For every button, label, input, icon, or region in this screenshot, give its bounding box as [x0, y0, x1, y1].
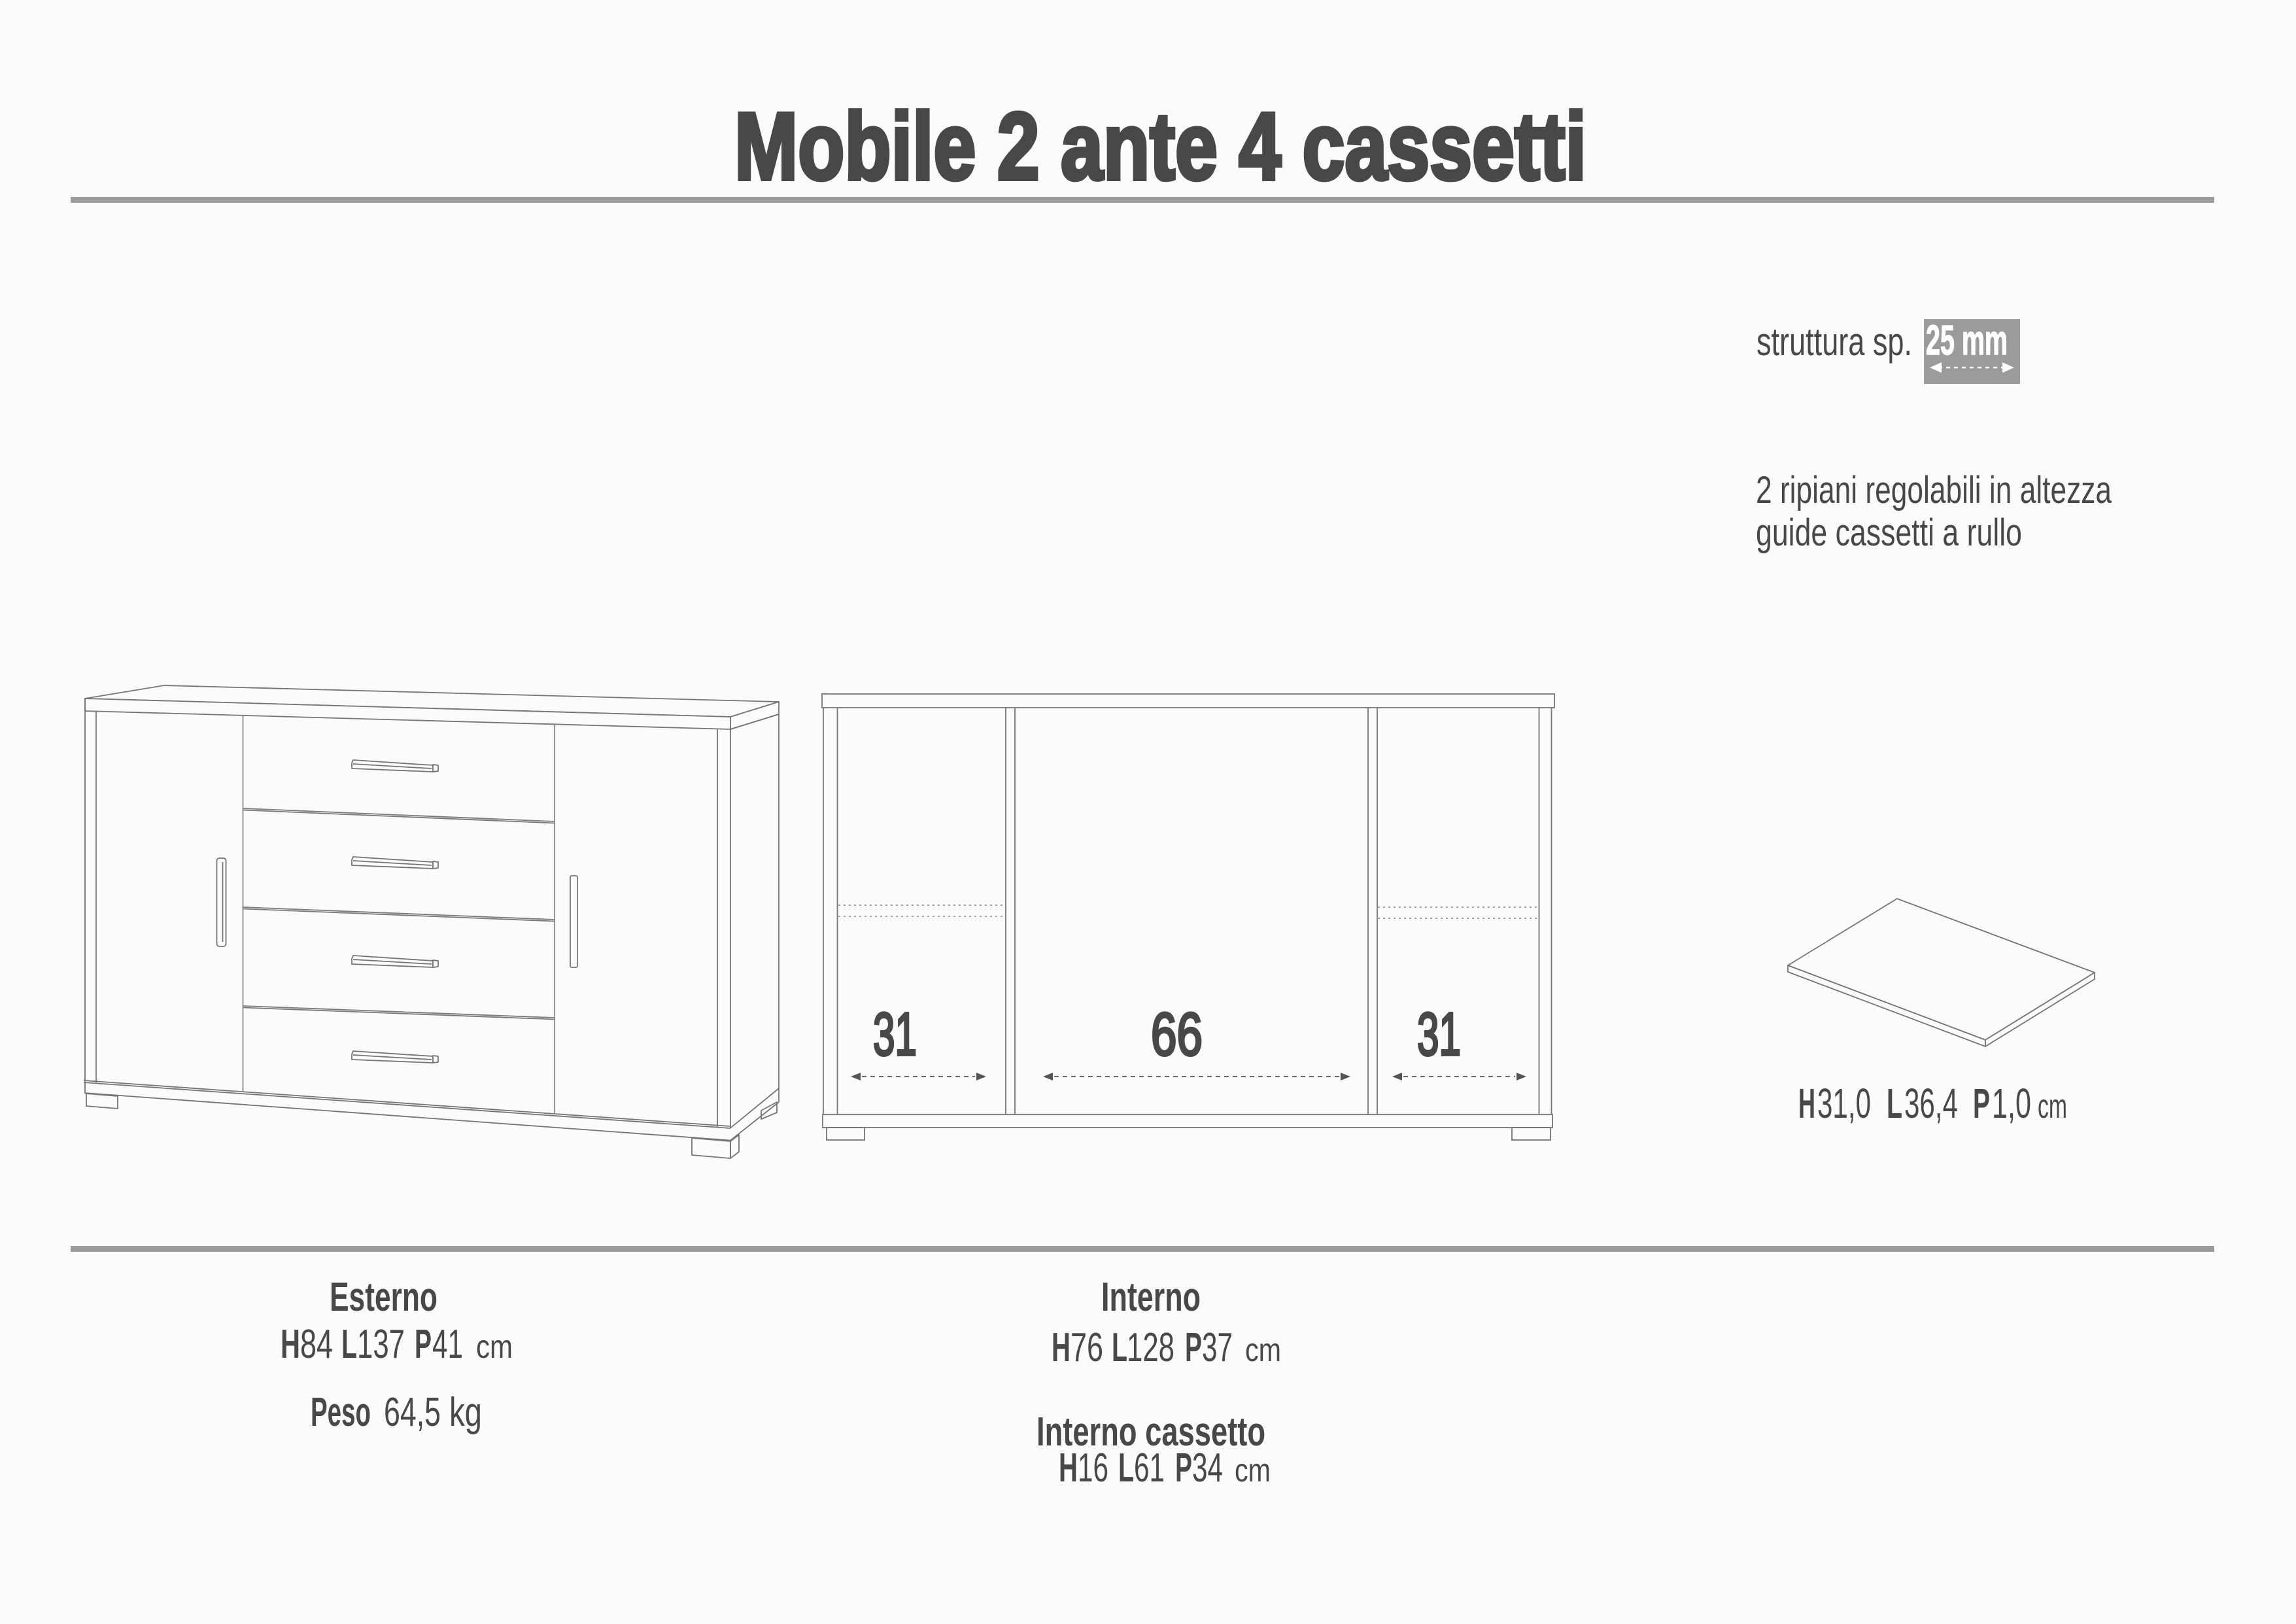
svg-text:cm: cm [2038, 1088, 2067, 1126]
svg-text:Peso: Peso [311, 1390, 371, 1435]
svg-text:41: 41 [432, 1322, 463, 1367]
svg-text:66: 66 [1151, 1000, 1203, 1068]
svg-text:guide cassetti a rullo: guide cassetti a rullo [1756, 511, 2022, 554]
svg-text:cm: cm [476, 1328, 513, 1365]
svg-text:H: H [281, 1322, 300, 1367]
svg-text:struttura sp.: struttura sp. [1756, 320, 1912, 364]
svg-text:Interno: Interno [1101, 1275, 1201, 1320]
svg-text:1,0: 1,0 [1992, 1080, 2031, 1127]
svg-text:31: 31 [873, 1000, 917, 1068]
svg-text:36,4: 36,4 [1904, 1080, 1958, 1127]
svg-text:Mobile 2 ante 4 cassetti: Mobile 2 ante 4 cassetti [734, 93, 1586, 199]
svg-text:Esterno: Esterno [330, 1275, 437, 1320]
svg-text:37: 37 [1202, 1325, 1233, 1370]
svg-text:cm: cm [1245, 1332, 1281, 1368]
svg-text:H: H [1798, 1080, 1815, 1127]
svg-text:31,0: 31,0 [1817, 1080, 1871, 1127]
svg-text:H: H [1052, 1325, 1071, 1370]
svg-text:P: P [1973, 1080, 1990, 1127]
svg-text:76: 76 [1071, 1325, 1103, 1370]
svg-text:31: 31 [1417, 1000, 1461, 1068]
svg-text:84: 84 [300, 1322, 333, 1367]
svg-text:25 mm: 25 mm [1926, 317, 2008, 364]
svg-text:L: L [1887, 1080, 1902, 1127]
svg-text:128: 128 [1127, 1325, 1174, 1370]
svg-text:61: 61 [1134, 1445, 1165, 1491]
svg-text:16: 16 [1078, 1445, 1108, 1491]
svg-text:cm: cm [1235, 1452, 1271, 1489]
svg-text:P: P [415, 1322, 432, 1367]
svg-text:2 ripiani regolabili in altezz: 2 ripiani regolabili in altezza [1756, 469, 2112, 511]
svg-text:P: P [1175, 1445, 1192, 1491]
svg-text:L: L [1112, 1325, 1127, 1370]
svg-text:137: 137 [357, 1322, 405, 1367]
svg-text:34: 34 [1192, 1445, 1223, 1491]
svg-text:kg: kg [449, 1390, 482, 1435]
svg-text:P: P [1185, 1325, 1202, 1370]
svg-text:64,5: 64,5 [384, 1390, 441, 1435]
svg-text:H: H [1059, 1445, 1078, 1491]
svg-text:L: L [341, 1322, 357, 1367]
svg-text:L: L [1118, 1445, 1134, 1491]
